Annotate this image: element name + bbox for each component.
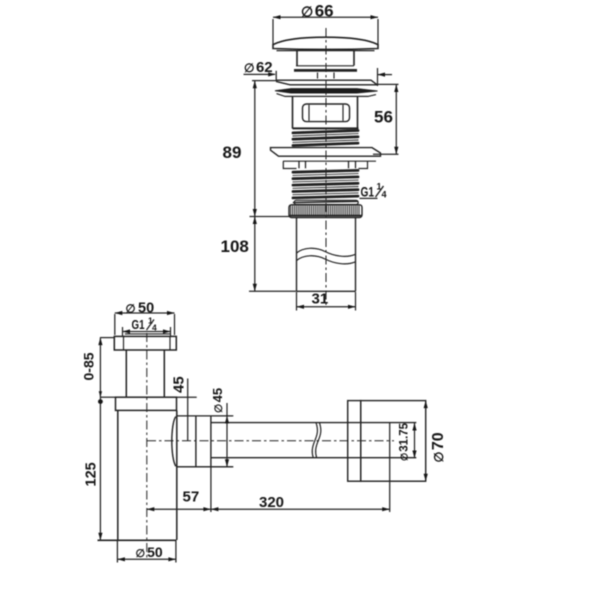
svg-text:4: 4 [382, 190, 387, 200]
svg-text:∅45: ∅45 [210, 388, 225, 413]
svg-text:320: 320 [259, 494, 284, 511]
svg-text:0-85: 0-85 [81, 352, 97, 380]
svg-text:45: 45 [171, 376, 188, 393]
svg-text:57: 57 [183, 489, 200, 506]
svg-text:89: 89 [223, 143, 242, 162]
svg-text:G1: G1 [361, 185, 375, 200]
svg-text:G1: G1 [132, 318, 145, 332]
svg-text:125: 125 [84, 462, 100, 486]
svg-text:∅66: ∅66 [301, 2, 334, 21]
svg-text:∅62: ∅62 [244, 59, 273, 76]
svg-text:56: 56 [374, 108, 393, 127]
svg-text:∅31.75: ∅31.75 [399, 422, 411, 461]
svg-text:31: 31 [312, 291, 329, 308]
svg-text:∅70: ∅70 [430, 432, 447, 462]
svg-text:∅50: ∅50 [126, 301, 155, 317]
svg-text:108: 108 [221, 237, 249, 256]
svg-text:∅50: ∅50 [136, 544, 163, 560]
svg-text:4: 4 [152, 323, 157, 333]
